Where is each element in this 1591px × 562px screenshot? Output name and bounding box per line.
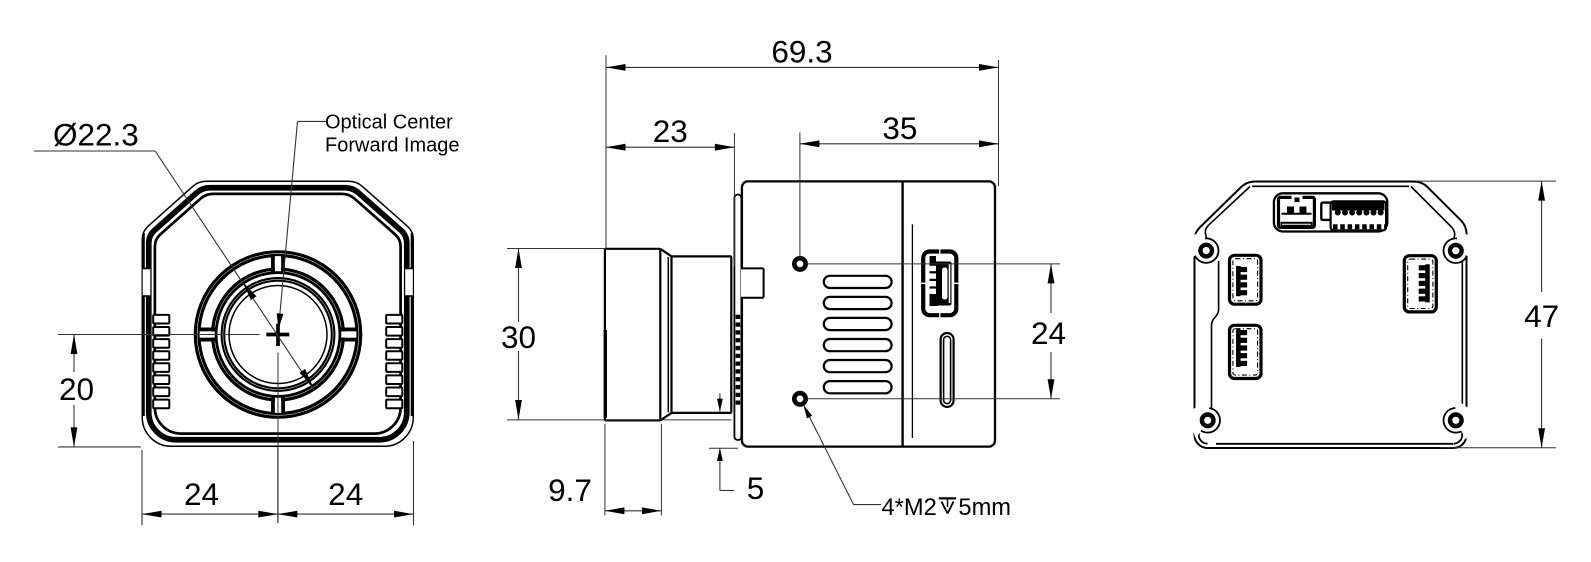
svg-text:5: 5 (747, 470, 765, 506)
svg-text:5mm: 5mm (958, 495, 1011, 521)
svg-text:69.3: 69.3 (771, 34, 832, 70)
svg-text:24: 24 (1031, 315, 1066, 351)
svg-text:23: 23 (653, 113, 688, 149)
svg-text:24: 24 (328, 476, 363, 512)
svg-text:Optical Center: Optical Center (325, 112, 453, 134)
svg-text:47: 47 (1524, 298, 1559, 334)
svg-text:9.7: 9.7 (548, 472, 592, 508)
svg-text:4*M2: 4*M2 (882, 495, 937, 521)
svg-text:35: 35 (882, 110, 917, 146)
svg-text:24: 24 (184, 476, 219, 512)
svg-text:20: 20 (59, 371, 94, 407)
svg-text:Ø22.3: Ø22.3 (53, 117, 139, 153)
svg-text:30: 30 (501, 319, 536, 355)
svg-text:Forward Image: Forward Image (325, 134, 460, 156)
